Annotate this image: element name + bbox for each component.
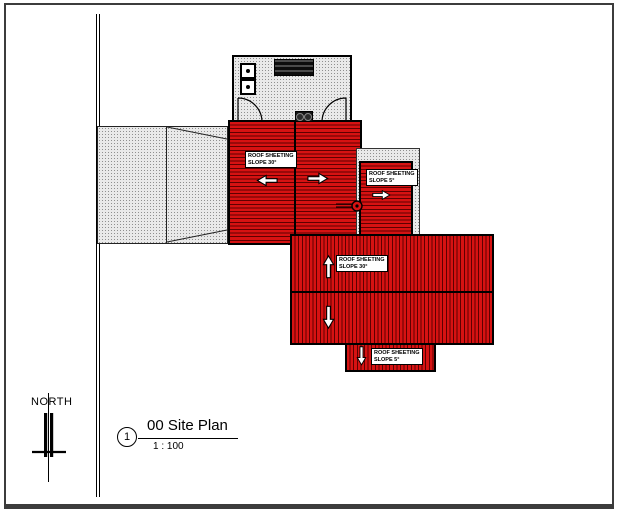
roof-label-east: ROOF SHEETING SLOPE 5° [366, 169, 418, 186]
slope-arrow-east-icon [307, 172, 329, 185]
roof-label-text: ROOF SHEETING [248, 153, 294, 160]
driveway-hatch [97, 126, 228, 244]
stove-icon [295, 111, 313, 122]
property-boundary-line [96, 14, 100, 497]
burner-icon [304, 113, 312, 121]
driveway-divider-line [166, 126, 167, 244]
slope-arrow-south-low-icon [355, 346, 368, 366]
slope-arrow-west-icon [256, 174, 278, 187]
roof-main-ridge-line [292, 291, 492, 293]
fixture-dot-icon [246, 85, 250, 89]
roof-main-sheeting [290, 234, 494, 345]
roof-label-text: SLOPE 5° [374, 357, 420, 364]
vent-grill-icon [274, 59, 314, 76]
roof-label-text: ROOF SHEETING [369, 171, 415, 178]
roof-label-text: ROOF SHEETING [339, 257, 385, 264]
roof-label-west: ROOF SHEETING SLOPE 30° [245, 151, 297, 168]
fixture-dot-icon [246, 69, 250, 73]
roof-label-main: ROOF SHEETING SLOPE 30° [336, 255, 388, 272]
slope-arrow-north-icon [322, 254, 335, 279]
roof-west-ridge-line [294, 121, 296, 244]
slope-arrow-east-low-icon [372, 189, 391, 201]
view-number-bubble: 1 [117, 427, 137, 447]
view-scale: 1 : 100 [153, 441, 184, 452]
roof-label-text: SLOPE 5° [369, 178, 415, 185]
roof-label-text: ROOF SHEETING [374, 350, 420, 357]
wall-fixture-box [240, 79, 256, 95]
view-title-underline [138, 438, 238, 439]
wall-fixture-box [240, 63, 256, 79]
roof-label-south: ROOF SHEETING SLOPE 5° [371, 348, 423, 365]
view-title: 00 Site Plan [147, 417, 228, 434]
slope-arrow-south-icon [322, 305, 335, 330]
drawing-sheet: ROOF SHEETING SLOPE 30° ROOF SHEETING SL… [0, 0, 619, 522]
roof-label-text: SLOPE 30° [248, 160, 294, 167]
north-label: NORTH [31, 396, 72, 408]
view-number: 1 [124, 431, 130, 443]
burner-icon [296, 113, 304, 121]
roof-label-text: SLOPE 30° [339, 264, 385, 271]
